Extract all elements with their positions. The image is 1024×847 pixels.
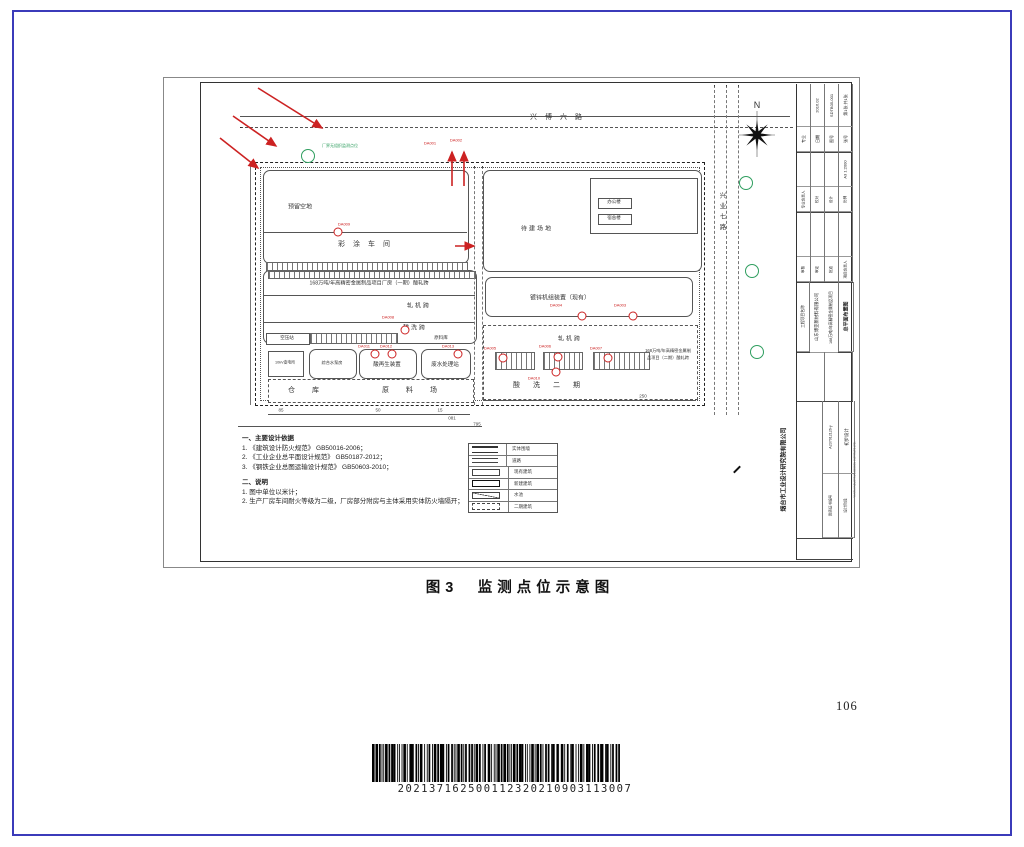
red-arrow	[258, 88, 322, 128]
north-arrow-icon	[739, 111, 775, 157]
arrows-overlay	[0, 0, 1024, 847]
document-page: { "page": { "caption": "图3 监测点位示意图", "pa…	[0, 0, 1024, 847]
red-arrow	[220, 138, 258, 168]
red-arrow	[233, 116, 276, 146]
